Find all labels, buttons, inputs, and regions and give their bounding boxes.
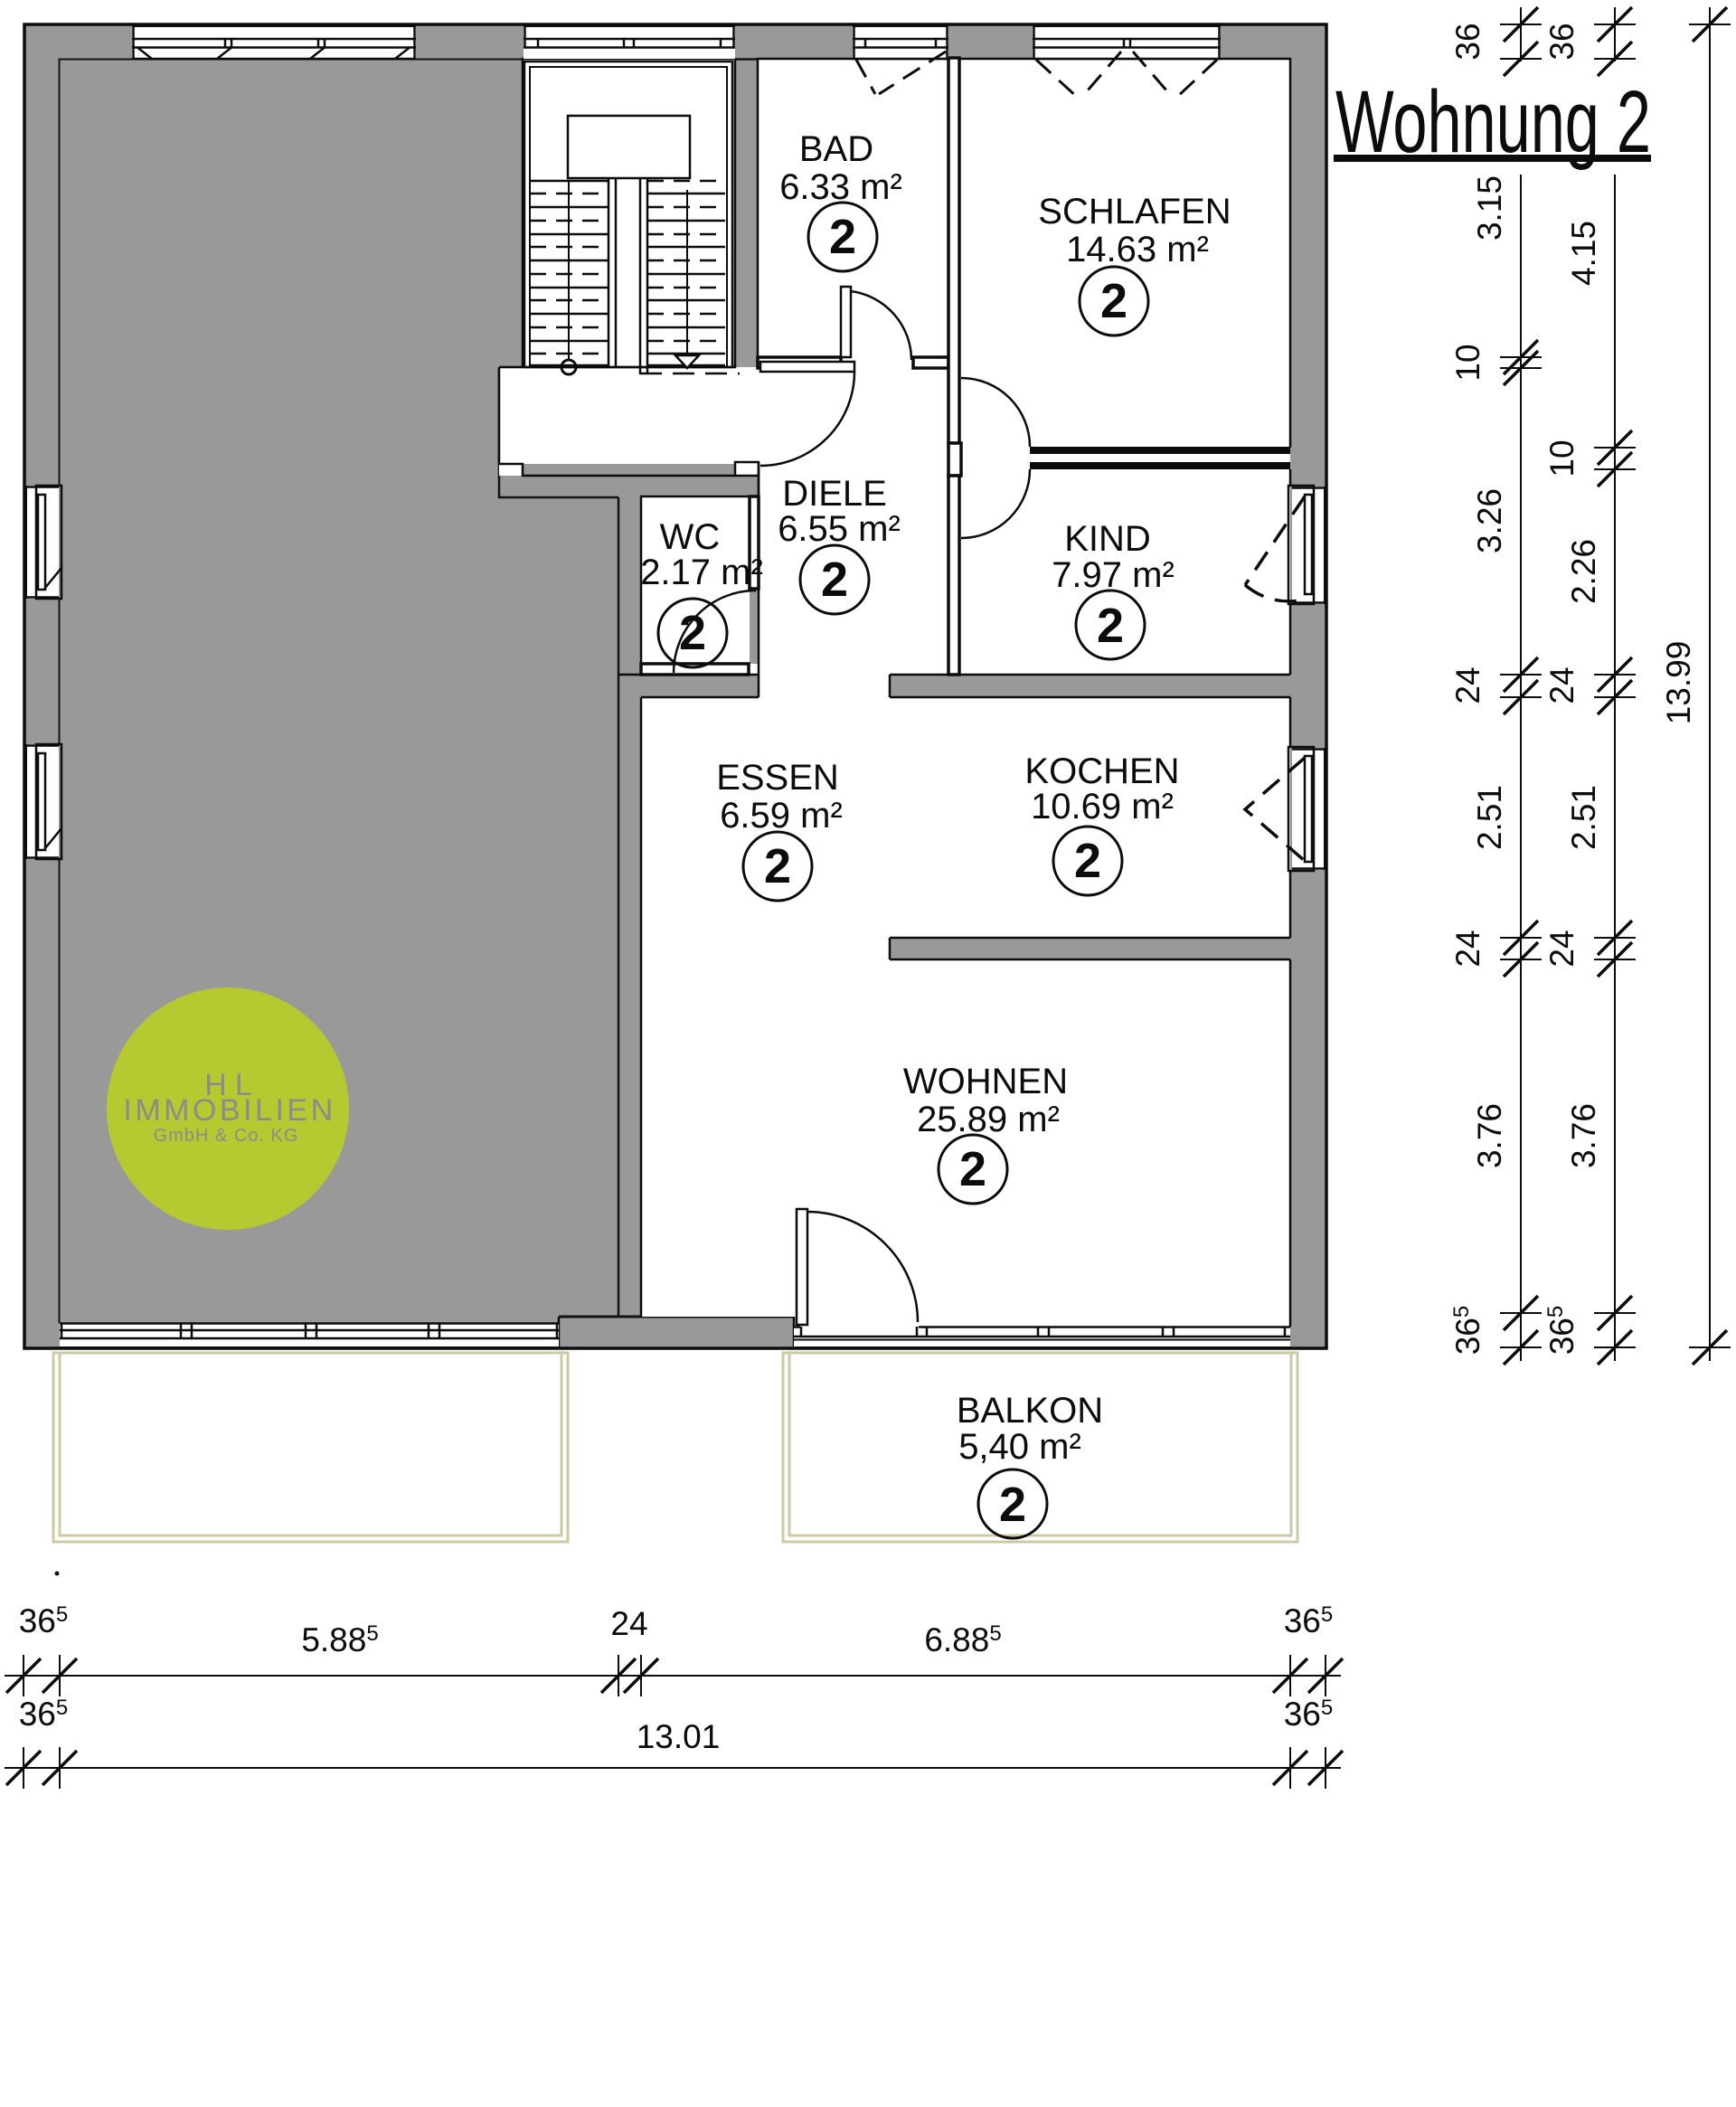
svg-text:BAD: BAD xyxy=(799,129,873,169)
svg-text:2: 2 xyxy=(1074,834,1101,888)
svg-text:2: 2 xyxy=(959,1142,986,1196)
svg-text:3.76: 3.76 xyxy=(1565,1103,1602,1168)
svg-text:7.97 m²: 7.97 m² xyxy=(1052,555,1175,595)
svg-text:3.15: 3.15 xyxy=(1471,175,1508,241)
svg-text:2.51: 2.51 xyxy=(1565,785,1602,850)
svg-text:3.26: 3.26 xyxy=(1471,488,1508,553)
svg-text:4.15: 4.15 xyxy=(1565,221,1602,286)
svg-text:24: 24 xyxy=(1449,930,1486,967)
svg-text:36: 36 xyxy=(1543,23,1580,60)
svg-text:KIND: KIND xyxy=(1064,519,1151,559)
svg-text:2: 2 xyxy=(821,553,848,607)
svg-text:2: 2 xyxy=(999,1478,1026,1532)
svg-text:24: 24 xyxy=(1543,930,1580,967)
svg-text:2: 2 xyxy=(1100,274,1127,328)
svg-text:WOHNEN: WOHNEN xyxy=(903,1062,1068,1101)
svg-text:GmbH & Co. KG: GmbH & Co. KG xyxy=(154,1126,299,1146)
svg-text:2: 2 xyxy=(829,210,856,264)
svg-text:2: 2 xyxy=(1097,599,1124,653)
svg-text:WC: WC xyxy=(660,517,721,557)
svg-text:6.55 m²: 6.55 m² xyxy=(778,509,901,549)
svg-text:2.51: 2.51 xyxy=(1471,785,1508,850)
svg-text:24: 24 xyxy=(1449,666,1486,704)
svg-text:10: 10 xyxy=(1543,439,1580,477)
svg-text:IMMOBILIEN: IMMOBILIEN xyxy=(123,1093,335,1128)
svg-text:13.01: 13.01 xyxy=(637,1718,721,1755)
svg-text:6.33 m²: 6.33 m² xyxy=(779,167,902,207)
svg-text:6.59 m²: 6.59 m² xyxy=(720,796,843,836)
svg-text:KOCHEN: KOCHEN xyxy=(1024,751,1179,791)
svg-text:5,40 m²: 5,40 m² xyxy=(958,1427,1081,1467)
svg-text:DIELE: DIELE xyxy=(782,474,887,514)
svg-text:14.63 m²: 14.63 m² xyxy=(1066,230,1209,269)
svg-text:2: 2 xyxy=(764,839,791,893)
svg-text:25.89 m²: 25.89 m² xyxy=(917,1100,1060,1139)
svg-text:10.69 m²: 10.69 m² xyxy=(1031,787,1174,827)
svg-text:BALKON: BALKON xyxy=(957,1391,1103,1431)
svg-text:24: 24 xyxy=(610,1605,647,1642)
svg-text:3.76: 3.76 xyxy=(1471,1103,1508,1168)
svg-text:SCHLAFEN: SCHLAFEN xyxy=(1038,192,1231,231)
svg-text:2: 2 xyxy=(679,606,706,660)
svg-text:10: 10 xyxy=(1449,344,1486,381)
svg-text:ESSEN: ESSEN xyxy=(716,758,839,798)
svg-text:24: 24 xyxy=(1543,666,1580,704)
svg-text:2.26: 2.26 xyxy=(1565,539,1602,604)
svg-text:13.99: 13.99 xyxy=(1660,641,1697,725)
svg-text:36: 36 xyxy=(1449,23,1486,60)
svg-text:2.17 m²: 2.17 m² xyxy=(640,553,763,592)
